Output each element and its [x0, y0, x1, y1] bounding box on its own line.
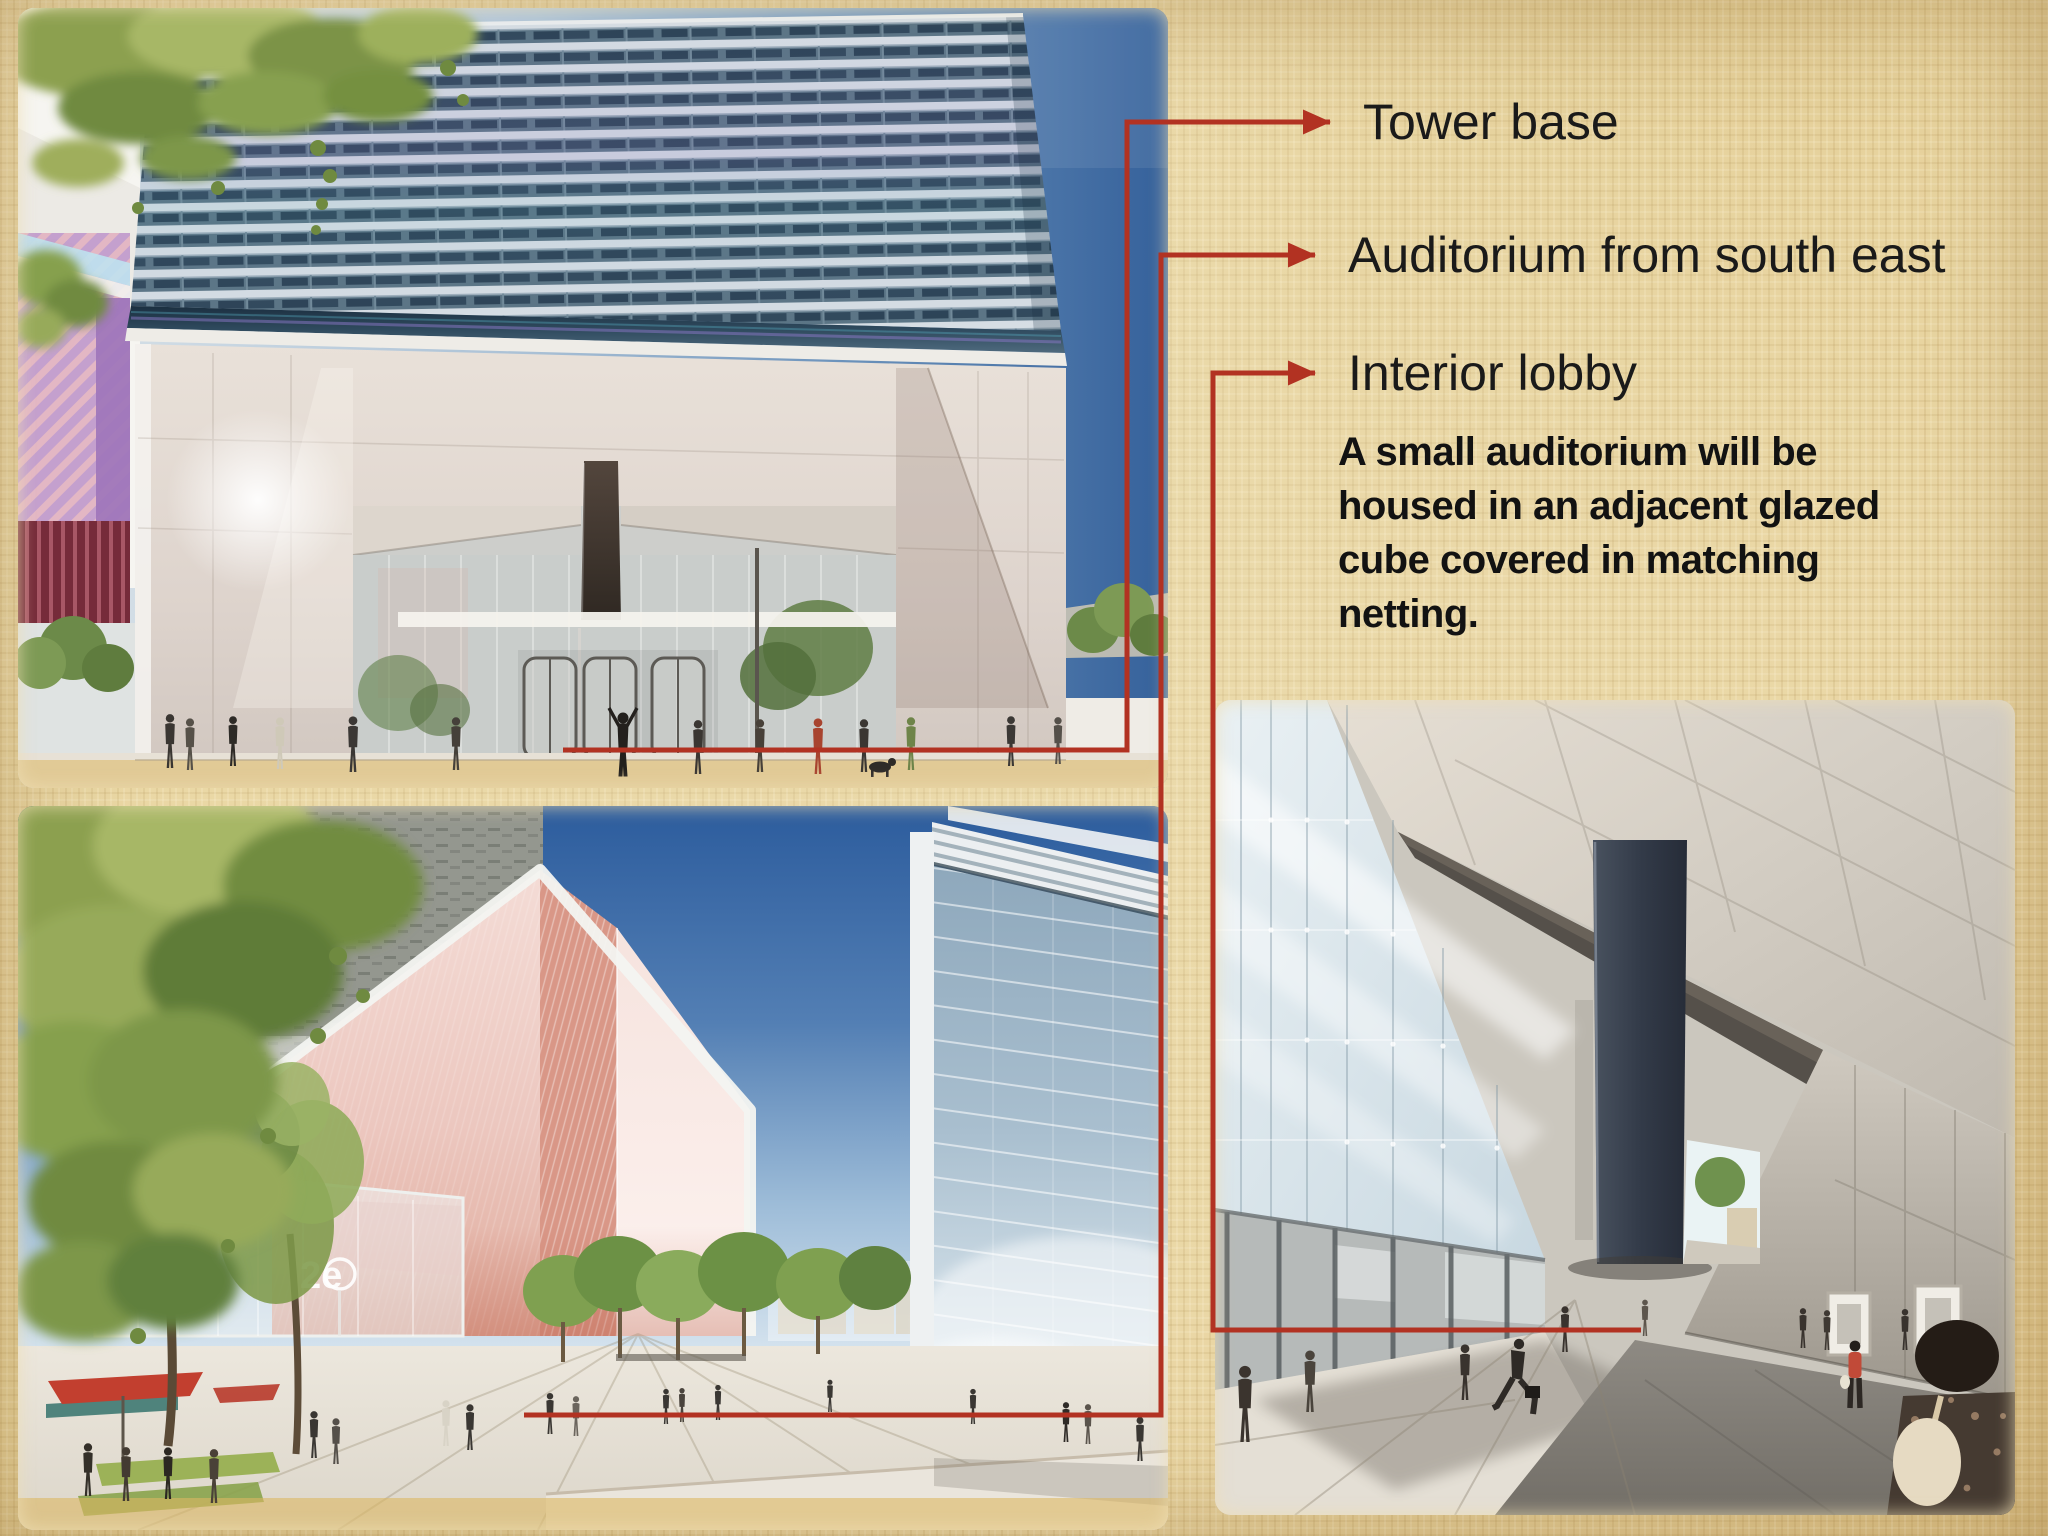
slide: 2e	[0, 0, 2048, 1536]
tower-base-rendering	[18, 8, 1168, 788]
interior-lobby-rendering	[1215, 700, 2015, 1515]
lobby-base	[135, 344, 1066, 760]
callout-label-tower-base: Tower base	[1363, 93, 1619, 151]
annotation-line: A small auditorium will be	[1338, 425, 1948, 479]
auditorium-image: 2e	[18, 806, 1168, 1530]
annotation-line: cube covered in matching	[1338, 533, 1948, 587]
callout-label-interior-lobby: Interior lobby	[1348, 344, 1637, 402]
auditorium-rendering: 2e	[18, 806, 1168, 1530]
interior-lobby-image	[1215, 700, 2015, 1515]
callout-label-auditorium: Auditorium from south east	[1348, 226, 1946, 284]
annotation-line: housed in an adjacent glazed	[1338, 479, 1948, 533]
exterior-view-slot	[1683, 1140, 1760, 1264]
tower-base-image	[18, 8, 1168, 788]
annotation-line: netting.	[1338, 587, 1948, 641]
plaza	[18, 1334, 1168, 1530]
annotation-text: A small auditorium will be housed in an …	[1338, 425, 1948, 641]
revolving-doors	[518, 650, 718, 760]
